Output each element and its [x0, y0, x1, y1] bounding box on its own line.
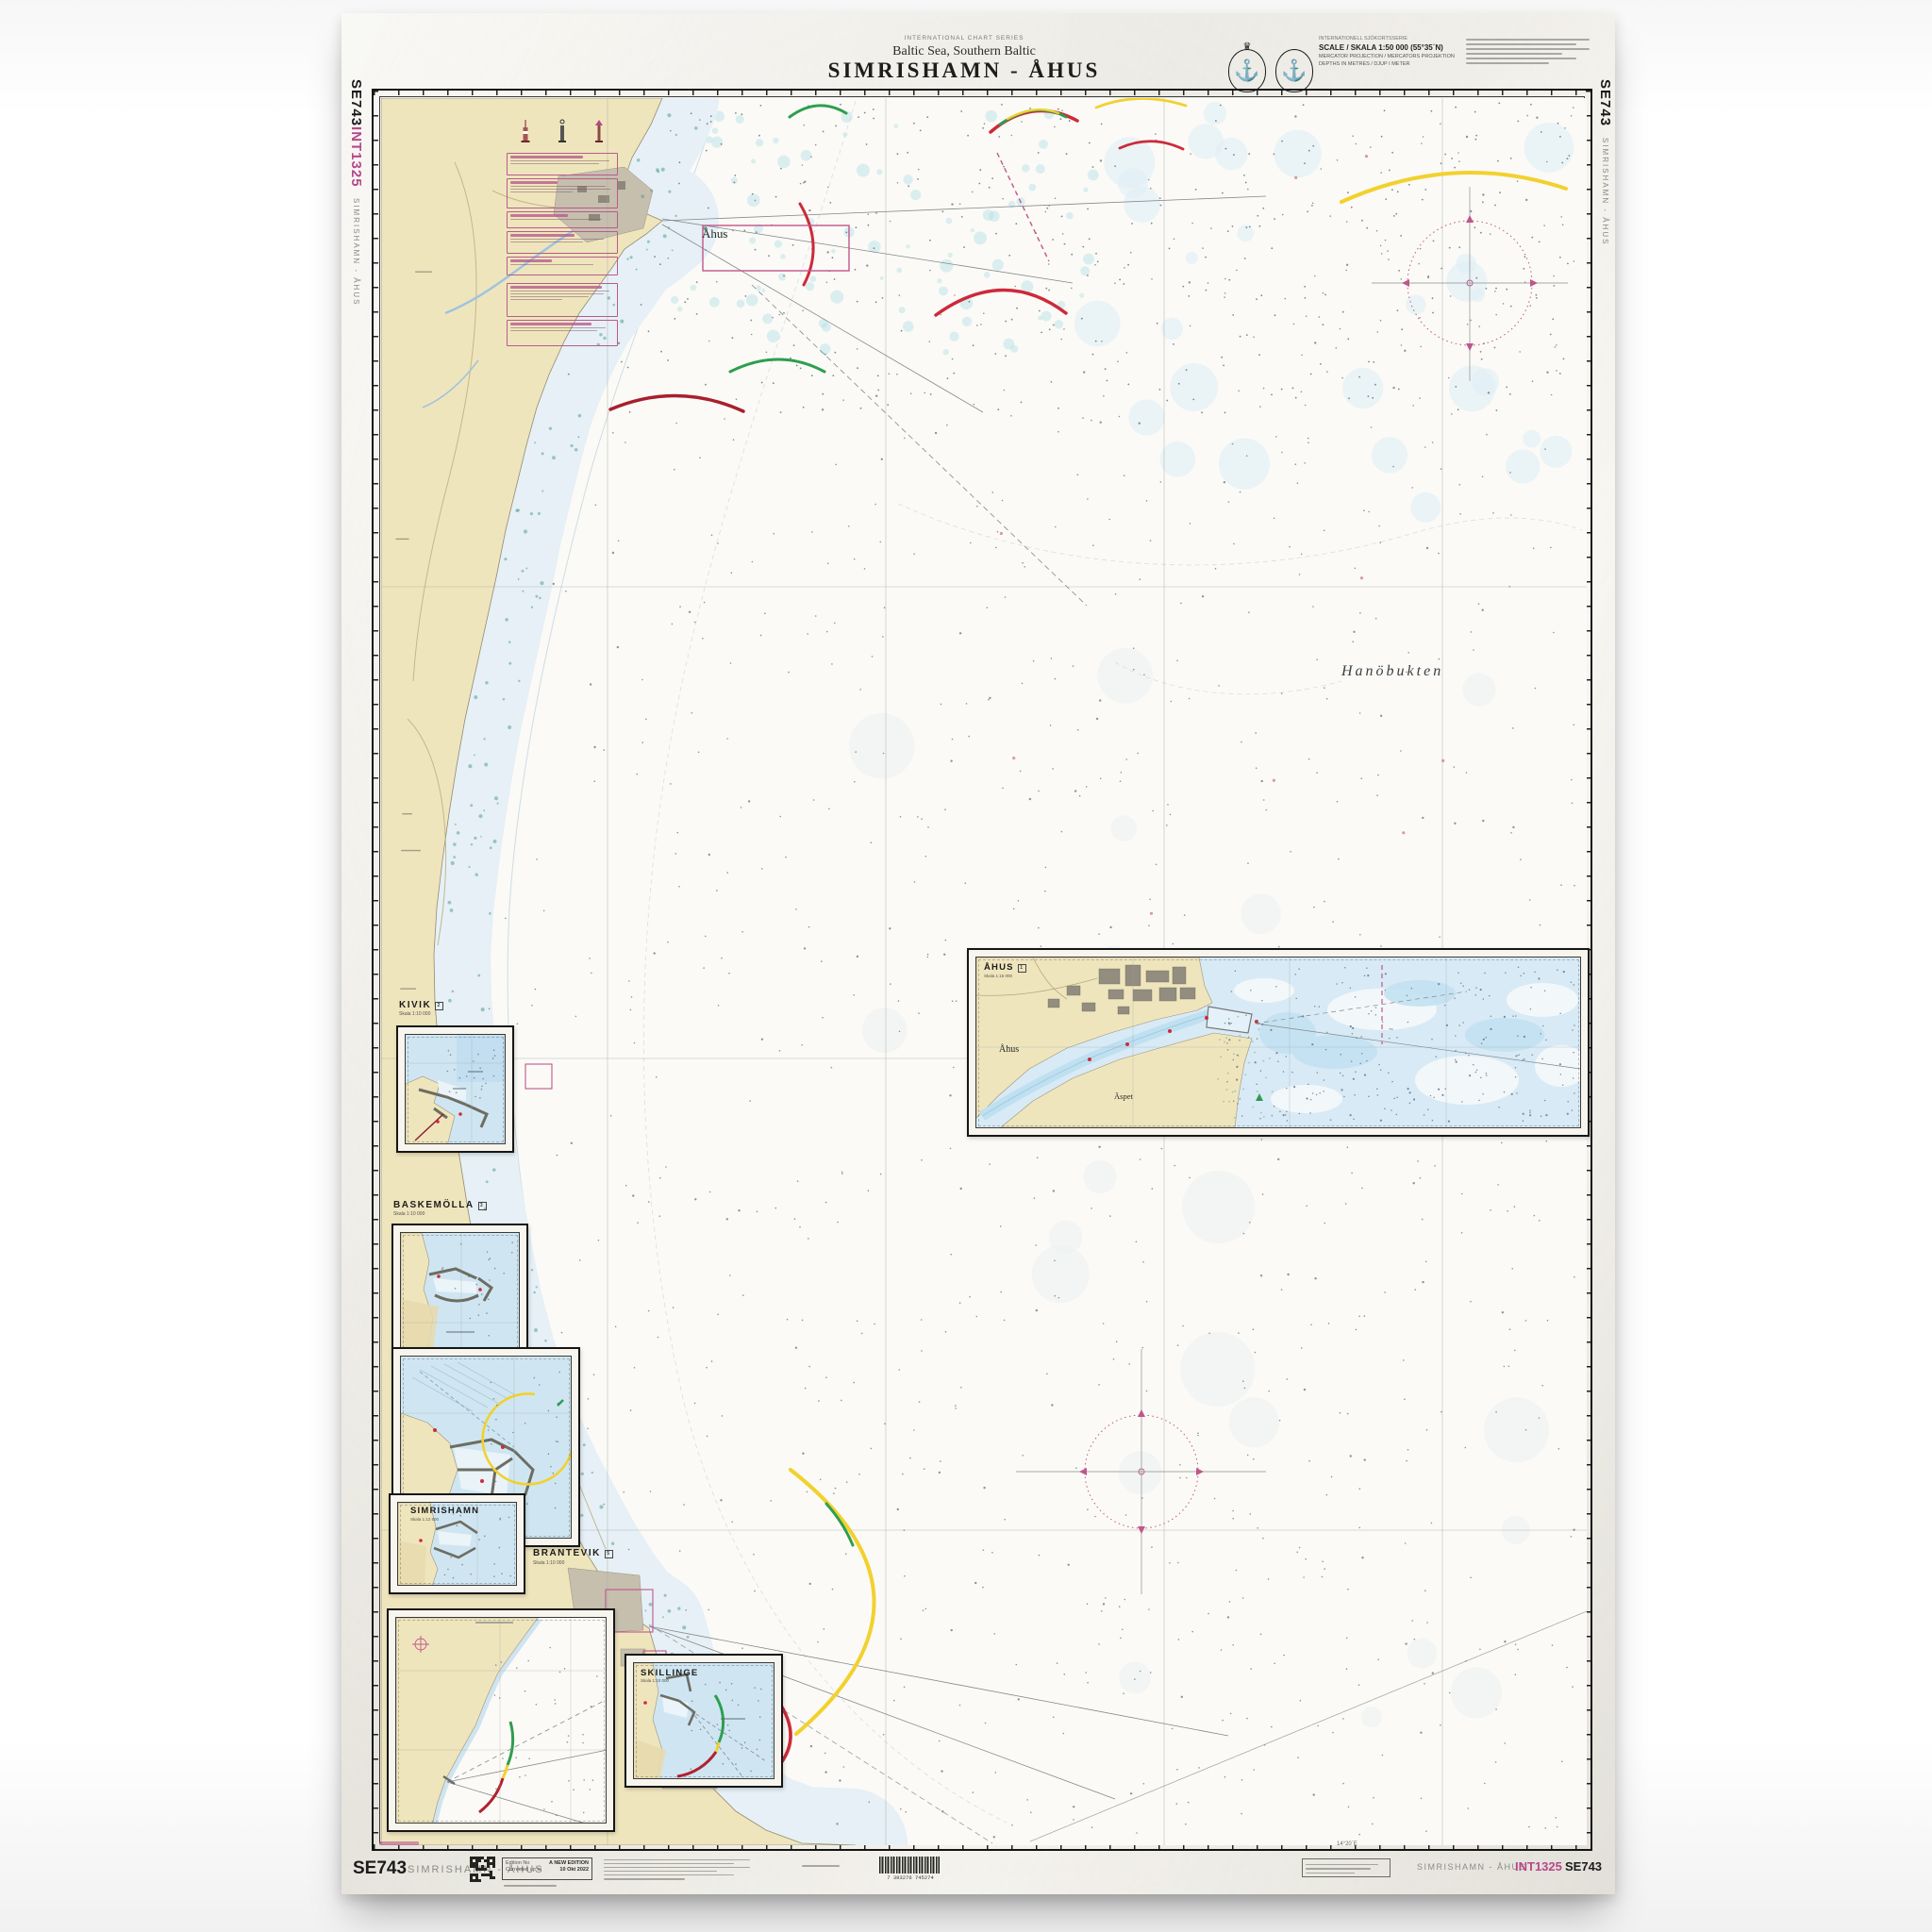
- edition-label: Edition No: [506, 1860, 529, 1867]
- inset-ref-box: 3: [478, 1202, 487, 1210]
- photo-stage: INTERNATIONAL CHART SERIES Baltic Sea, S…: [0, 0, 1932, 1932]
- chart-title: SIMRISHAMN - ÅHUS: [775, 58, 1153, 83]
- inset-south-coast: [387, 1608, 615, 1832]
- notice-box: [507, 257, 618, 275]
- crown-anchor-emblem-icon: ⚓: [1228, 49, 1266, 92]
- right-edge-number: SE743: [1597, 79, 1613, 126]
- longitude-tick-label: 14°20´E: [1337, 1841, 1357, 1847]
- bottom-right-chart-number: SE743: [1565, 1859, 1602, 1874]
- notice-box: [507, 320, 618, 346]
- notice-box: [507, 231, 618, 254]
- chart-region-label: Baltic Sea, Southern Baltic: [823, 44, 1106, 59]
- inset-kivik-scale: Skala 1:10 000: [399, 1011, 430, 1017]
- qr-code: [470, 1857, 495, 1882]
- inset-kivik-title: KIVIK2: [399, 1000, 443, 1010]
- inset-ahus-title: ÅHUS1: [984, 962, 1026, 973]
- bottom-right-title: SIMRISHAMN - ÅHUS: [1417, 1862, 1526, 1872]
- inset-skillinge-scale: Skala 1:10 000: [641, 1678, 669, 1683]
- copyright-paragraph: [604, 1857, 766, 1882]
- depth-unit-line: DEPTHS IN METRES / DJUP I METER: [1319, 61, 1458, 67]
- barcode-digits: 7 393276 745274: [875, 1874, 945, 1881]
- notice-box: [507, 211, 618, 228]
- notices-legend: [507, 118, 618, 313]
- inset-ahus-aspet-label: Äspet: [1114, 1091, 1133, 1101]
- edition-value: A NEW EDITION: [549, 1860, 589, 1867]
- scale-block: INTERNATIONELL SJÖKORTSSERIE SCALE / SKA…: [1319, 36, 1458, 67]
- lighthouse-icon: [520, 118, 531, 146]
- right-edge-title: SIMRISHAMN - ÅHUS: [1601, 138, 1609, 245]
- beacon-tower-icon: [557, 118, 568, 146]
- fine-print-box: [1302, 1858, 1391, 1877]
- daymark-icon: [593, 118, 605, 146]
- printed-note: [504, 1882, 570, 1890]
- inset-ahus-scale: Skala 1:15 000: [984, 974, 1012, 978]
- notice-box: [507, 283, 618, 317]
- edition-box: Edition No A NEW EDITION Corrected up to…: [502, 1857, 592, 1880]
- left-edge-number: SE743: [348, 79, 364, 126]
- inset-ref-box: 2: [435, 1002, 443, 1010]
- inset-ref-box: 5: [605, 1550, 613, 1558]
- corrected-value: 10 Okt 2022: [559, 1867, 589, 1874]
- bay-name-label: Hanöbukten: [1341, 663, 1443, 679]
- scale-series-line: INTERNATIONELL SJÖKORTSSERIE: [1319, 36, 1458, 42]
- inset-brantevik-scale: Skala 1:10 000: [533, 1560, 564, 1566]
- publisher-emblems: ⚓ ⚓: [1228, 49, 1313, 92]
- scale-statement: SCALE / SKALA 1:50 000 (55°35´N): [1319, 43, 1458, 52]
- beacon-symbols: [507, 118, 618, 150]
- bottom-chart-number: SE743: [353, 1858, 407, 1879]
- inset-skillinge-title: SKILLINGE: [641, 1668, 698, 1678]
- chart-paper: INTERNATIONAL CHART SERIES Baltic Sea, S…: [341, 13, 1615, 1894]
- inset-ahus-town-label: Åhus: [999, 1043, 1019, 1055]
- inset-simrishamn-title: SIMRISHAMN: [410, 1506, 479, 1516]
- inset-baskemolla-title: BASKEMÖLLA3: [393, 1200, 487, 1210]
- anchor-emblem-icon: ⚓: [1275, 49, 1313, 92]
- left-edge-int-number: INT1325: [348, 126, 364, 188]
- inset-brantevik-title: BRANTEVIK5: [533, 1548, 613, 1558]
- inset-kivik: [396, 1025, 514, 1153]
- print-note-magenta: [379, 1841, 419, 1845]
- inset-skillinge: SKILLINGE Skala 1:10 000: [625, 1654, 783, 1788]
- notice-box: [507, 153, 618, 175]
- notice-box: [507, 178, 618, 208]
- top-fine-print: [1466, 36, 1604, 67]
- inset-simrishamn-scale: Skala 1:12 500: [410, 1517, 439, 1522]
- inset-baskemolla-scale: Skala 1:10 000: [393, 1211, 425, 1217]
- bottom-margin: SE743 SIMRISHAMN - ÅHUS Edition No A NEW…: [341, 1855, 1615, 1894]
- left-edge-title: SIMRISHAMN - ÅHUS: [352, 198, 360, 306]
- left-edge-chart-id: SE743INT1325 SIMRISHAMN - ÅHUS: [347, 79, 364, 307]
- projection-line: MERCATOR PROJECTION / MERCATORS PROJEKTI…: [1319, 54, 1458, 59]
- barcode: [879, 1857, 940, 1874]
- corrected-label: Corrected up to: [506, 1867, 541, 1874]
- barcode-note: [802, 1862, 843, 1870]
- inset-ref-box: 1: [1018, 964, 1026, 973]
- inset-ahus: Åhus Äspet ÅHUS1 Skala 1:15 000: [967, 948, 1590, 1137]
- chart-series-label: INTERNATIONAL CHART SERIES: [870, 35, 1058, 42]
- town-name-label: Åhus: [702, 226, 727, 241]
- bottom-right-int-number: INT1325: [1515, 1859, 1562, 1874]
- inset-baskemolla: [391, 1224, 528, 1358]
- right-edge-chart-id: SE743 SIMRISHAMN - ÅHUS: [1596, 79, 1613, 245]
